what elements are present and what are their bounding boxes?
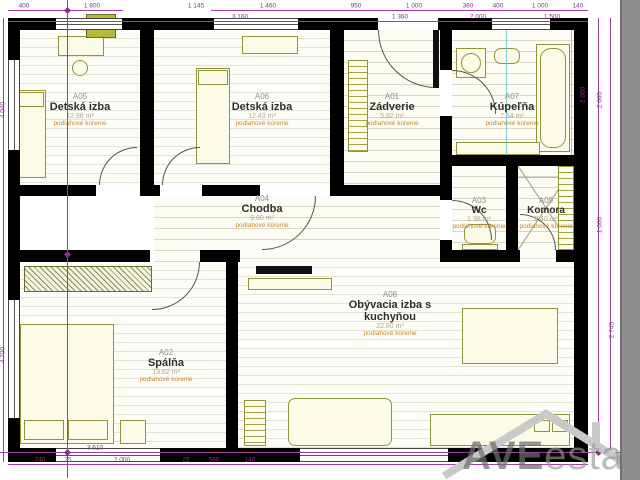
- room-name: Chodba: [235, 203, 288, 215]
- room-name: Komora: [519, 205, 572, 216]
- desk: [58, 36, 104, 56]
- dimension-node: [64, 7, 71, 14]
- room-heating-note: podlahové kúrenie: [139, 376, 192, 383]
- dimension-label: 1 460: [260, 3, 276, 10]
- wall: [452, 155, 588, 166]
- page-side-strip: [620, 0, 640, 480]
- dimension-label: 25: [64, 457, 71, 464]
- window: [492, 18, 550, 30]
- room-heating-note: podlahové kúrenie: [50, 120, 111, 127]
- window: [56, 18, 122, 30]
- dimension-label: 4 040: [0, 102, 7, 118]
- wall: [8, 250, 150, 262]
- window: [214, 18, 298, 30]
- wall: [440, 30, 452, 70]
- chair: [72, 60, 88, 76]
- room-area: 1.98 m²: [452, 216, 505, 223]
- wall: [154, 185, 160, 196]
- dimension-label: 2 000: [114, 457, 130, 464]
- dimension-label: 580: [209, 457, 220, 464]
- room-heating-note: podlahové kúrenie: [232, 120, 293, 127]
- dimension-label: 740: [35, 457, 46, 464]
- room-code: A01: [365, 92, 418, 101]
- tv: [256, 266, 312, 274]
- dimension-label: 1 360: [392, 14, 408, 21]
- wall: [140, 30, 154, 196]
- room-label-a02: A02 Spálňa 13.62 m² podlahové kúrenie: [139, 348, 192, 383]
- room-heating-note: podlahové kúrenie: [452, 223, 505, 230]
- sofa: [288, 398, 392, 446]
- dimension-label: 1 000: [597, 217, 604, 233]
- room-code: A08: [326, 290, 454, 299]
- terrace-window: [300, 448, 448, 462]
- dimension-line: [610, 18, 611, 452]
- shelf: [244, 400, 266, 446]
- room-label-a09: A09 Komora 2.40 m² podlahové kúrenie: [519, 196, 572, 230]
- wardrobe: [24, 266, 152, 292]
- wall: [200, 250, 240, 262]
- watermark-text: AVEestate: [462, 436, 640, 476]
- room-name: Kúpeľňa: [485, 101, 538, 113]
- pillow: [24, 420, 64, 440]
- wall: [556, 250, 588, 262]
- dimension-line: [598, 18, 599, 452]
- dining-table: [462, 308, 558, 364]
- room-area: 12.43 m²: [232, 113, 293, 120]
- window: [8, 300, 20, 418]
- dimension-label: 4 700: [0, 347, 7, 363]
- nightstand: [120, 420, 146, 444]
- room-name: Wc: [452, 205, 505, 216]
- dimension-label: 400: [493, 3, 504, 10]
- room-code: A05: [50, 92, 111, 101]
- watermark-brand-bold: AVE: [462, 434, 544, 478]
- room-name: Zádverie: [365, 101, 418, 113]
- wall: [574, 18, 588, 462]
- pillow: [18, 92, 44, 107]
- pillow: [198, 70, 228, 85]
- wall: [336, 185, 440, 196]
- room-code: A06: [232, 92, 293, 101]
- dimension-label: 25: [182, 457, 189, 464]
- dimension-label: 140: [573, 3, 584, 10]
- dimension-label: 1 000: [532, 3, 548, 10]
- dimension-label: 950: [351, 3, 362, 10]
- room-heating-note: podlahové kúrenie: [365, 120, 418, 127]
- room-label-a06: A06 Detská izba 12.43 m² podlahové kúren…: [232, 92, 293, 127]
- room-area: 7.34 m²: [485, 113, 538, 120]
- dimension-label: 1 500: [544, 14, 560, 21]
- room-name: Detská izba: [50, 101, 111, 113]
- room-area: 5.82 m²: [365, 113, 418, 120]
- section-line: [67, 0, 68, 478]
- room-code: A03: [452, 196, 505, 205]
- dimension-line: [8, 21, 588, 22]
- room-heating-note: podlahové kúrenie: [519, 223, 572, 230]
- floor-plan-canvas: A05 Detská izba 12.98 m² podlahové kúren…: [0, 0, 640, 480]
- entrance-door-leaf: [433, 30, 439, 88]
- room-area: 9.80 m²: [235, 215, 288, 222]
- wall: [440, 116, 452, 200]
- room-label-a07: A07 Kúpeľňa 7.34 m² podlahové kúrenie: [485, 92, 538, 127]
- room-label-a01: A01 Zádverie 5.82 m² podlahové kúrenie: [365, 92, 418, 127]
- wall: [226, 262, 238, 448]
- dimension-label: 1 000: [406, 3, 422, 10]
- window: [8, 60, 20, 150]
- room-code: A04: [235, 194, 288, 203]
- dimension-label: 1 145: [188, 3, 204, 10]
- room-code: A09: [519, 196, 572, 205]
- room-label-a05: A05 Detská izba 12.98 m² podlahové kúren…: [50, 92, 111, 127]
- room-name: Obývacia izba s kuchyňou: [326, 299, 454, 323]
- room-label-a04: A04 Chodba 9.80 m² podlahové kúrenie: [235, 194, 288, 229]
- room-label-a03: A03 Wc 1.98 m² podlahové kúrenie: [452, 196, 505, 230]
- wall: [8, 185, 96, 196]
- tv-bench: [248, 278, 332, 290]
- dimension-label: 360: [463, 3, 474, 10]
- dimension-label: 140: [245, 457, 256, 464]
- room-code: A02: [139, 348, 192, 357]
- room-heating-note: podlahové kúrenie: [485, 120, 538, 127]
- dimension-label: 2 745: [609, 322, 616, 338]
- room-heating-note: podlahové kúrenie: [326, 330, 454, 337]
- dimension-label: 3 610: [87, 445, 103, 452]
- desk: [242, 36, 298, 54]
- room-area: 22.60 m²: [326, 323, 454, 330]
- room-code: A07: [485, 92, 538, 101]
- washing-machine-drum: [461, 53, 481, 73]
- room-heating-note: podlahové kúrenie: [235, 222, 288, 229]
- dimension-label: 400: [19, 3, 30, 10]
- dimension-line: [8, 10, 588, 11]
- room-name: Spálňa: [139, 357, 192, 369]
- dimension-label: 2 660: [597, 92, 604, 108]
- room-name: Detská izba: [232, 101, 293, 113]
- dimension-label: 2 000: [470, 14, 486, 21]
- dimension-label: 3 160: [232, 14, 248, 21]
- pillow: [68, 420, 108, 440]
- dimension-label: 2 080: [580, 87, 587, 103]
- wall: [506, 166, 518, 250]
- room-area: 12.98 m²: [50, 113, 111, 120]
- wall: [330, 30, 344, 196]
- dimension-label: 1 800: [84, 3, 100, 10]
- room-label-a08: A08 Obývacia izba s kuchyňou 22.60 m² po…: [326, 290, 454, 337]
- dimension-line: [3, 18, 4, 462]
- wall: [446, 250, 520, 262]
- room-area: 2.40 m²: [519, 216, 572, 223]
- room-area: 13.62 m²: [139, 369, 192, 376]
